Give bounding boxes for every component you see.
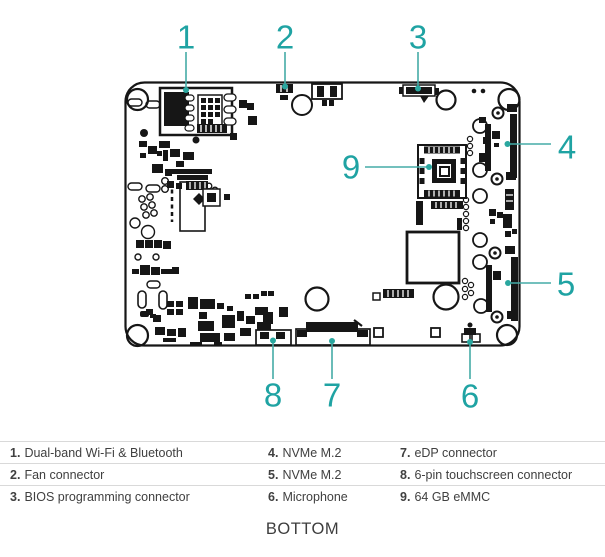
legend-item-num: 8.: [400, 468, 410, 482]
callout-number-4: 4: [558, 131, 576, 164]
legend-item-6: 6.Microphone: [268, 490, 400, 504]
via-dot: [481, 89, 486, 94]
legend-item-num: 9.: [400, 490, 410, 504]
legend-item-num: 6.: [268, 490, 278, 504]
callout-number-9: 9: [342, 151, 360, 184]
legend-item-3: 3.BIOS programming connector: [10, 490, 268, 504]
legend-item-2: 2.Fan connector: [10, 468, 268, 482]
legend-item-label: Microphone: [282, 490, 347, 504]
legend-item-7: 7.eDP connector: [400, 446, 605, 460]
legend-table: 1.Dual-band Wi-Fi & Bluetooth 4.NVMe M.2…: [0, 441, 605, 507]
legend-item-label: NVMe M.2: [282, 446, 341, 460]
legend-item-1: 1.Dual-band Wi-Fi & Bluetooth: [10, 446, 268, 460]
legend-item-label: eDP connector: [414, 446, 496, 460]
legend-item-num: 3.: [10, 490, 20, 504]
callout-number-6: 6: [461, 380, 479, 413]
view-label: BOTTOM: [0, 520, 605, 539]
callout-number-3: 3: [409, 21, 427, 54]
bottom-pad: [374, 328, 383, 337]
page: 1 2 3 4 5 6 7 8 9 1.Dual-band Wi-Fi & Bl…: [0, 0, 605, 557]
callout-number-8: 8: [264, 379, 282, 412]
legend-item-label: NVMe M.2: [282, 468, 341, 482]
legend-item-num: 1.: [10, 446, 20, 460]
legend-item-num: 2.: [10, 468, 20, 482]
bottom-pad: [431, 328, 440, 337]
legend-row-3: 3.BIOS programming connector 6.Microphon…: [0, 485, 605, 507]
legend-row-2: 2.Fan connector 5.NVMe M.2 8.6-pin touch…: [0, 463, 605, 485]
legend-item-label: Dual-band Wi-Fi & Bluetooth: [24, 446, 182, 460]
soc-chip: [407, 232, 459, 283]
legend-item-label: BIOS programming connector: [24, 490, 189, 504]
legend-item-4: 4.NVMe M.2: [268, 446, 400, 460]
legend-item-num: 5.: [268, 468, 278, 482]
legend-item-label: 6-pin touchscreen connector: [414, 468, 572, 482]
legend-row-1: 1.Dual-band Wi-Fi & Bluetooth 4.NVMe M.2…: [0, 441, 605, 463]
callout-number-2: 2: [276, 21, 294, 54]
legend-item-num: 4.: [268, 446, 278, 460]
callout-number-5: 5: [557, 268, 575, 301]
legend-item-8: 8.6-pin touchscreen connector: [400, 468, 605, 482]
board-diagram: [0, 0, 605, 430]
legend-item-label: Fan connector: [24, 468, 104, 482]
callout-number-1: 1: [177, 21, 195, 54]
legend-item-label: 64 GB eMMC: [414, 490, 490, 504]
legend-item-num: 7.: [400, 446, 410, 460]
via-dot: [472, 89, 477, 94]
callout-number-7: 7: [323, 379, 341, 412]
board-diagram-area: 1 2 3 4 5 6 7 8 9: [0, 0, 605, 430]
legend-item-5: 5.NVMe M.2: [268, 468, 400, 482]
legend-item-9: 9.64 GB eMMC: [400, 490, 605, 504]
